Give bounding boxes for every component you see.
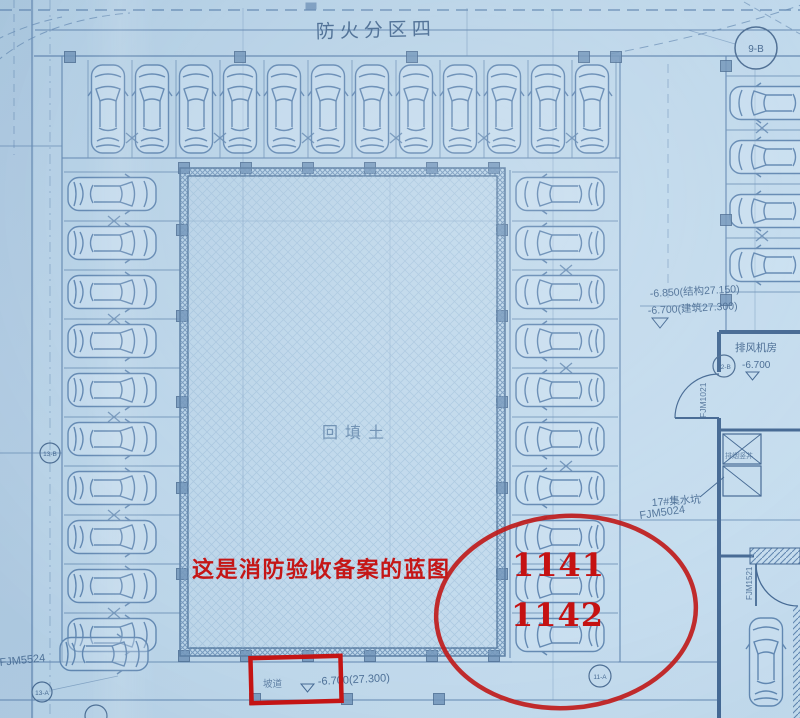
unit-number-1141: 1141 — [512, 546, 605, 584]
photo-light-streak — [85, 0, 155, 718]
red-note-text: 这是消防验收备案的蓝图 — [192, 557, 451, 582]
blueprint-canvas: 回填土 防火分区四 -6.850(结构27.150) -6.700(建筑27.3… — [0, 0, 800, 718]
blueprint-photo: 回填土 防火分区四 -6.850(结构27.150) -6.700(建筑27.3… — [0, 0, 800, 718]
unit-number-1142: 1142 — [511, 596, 604, 634]
